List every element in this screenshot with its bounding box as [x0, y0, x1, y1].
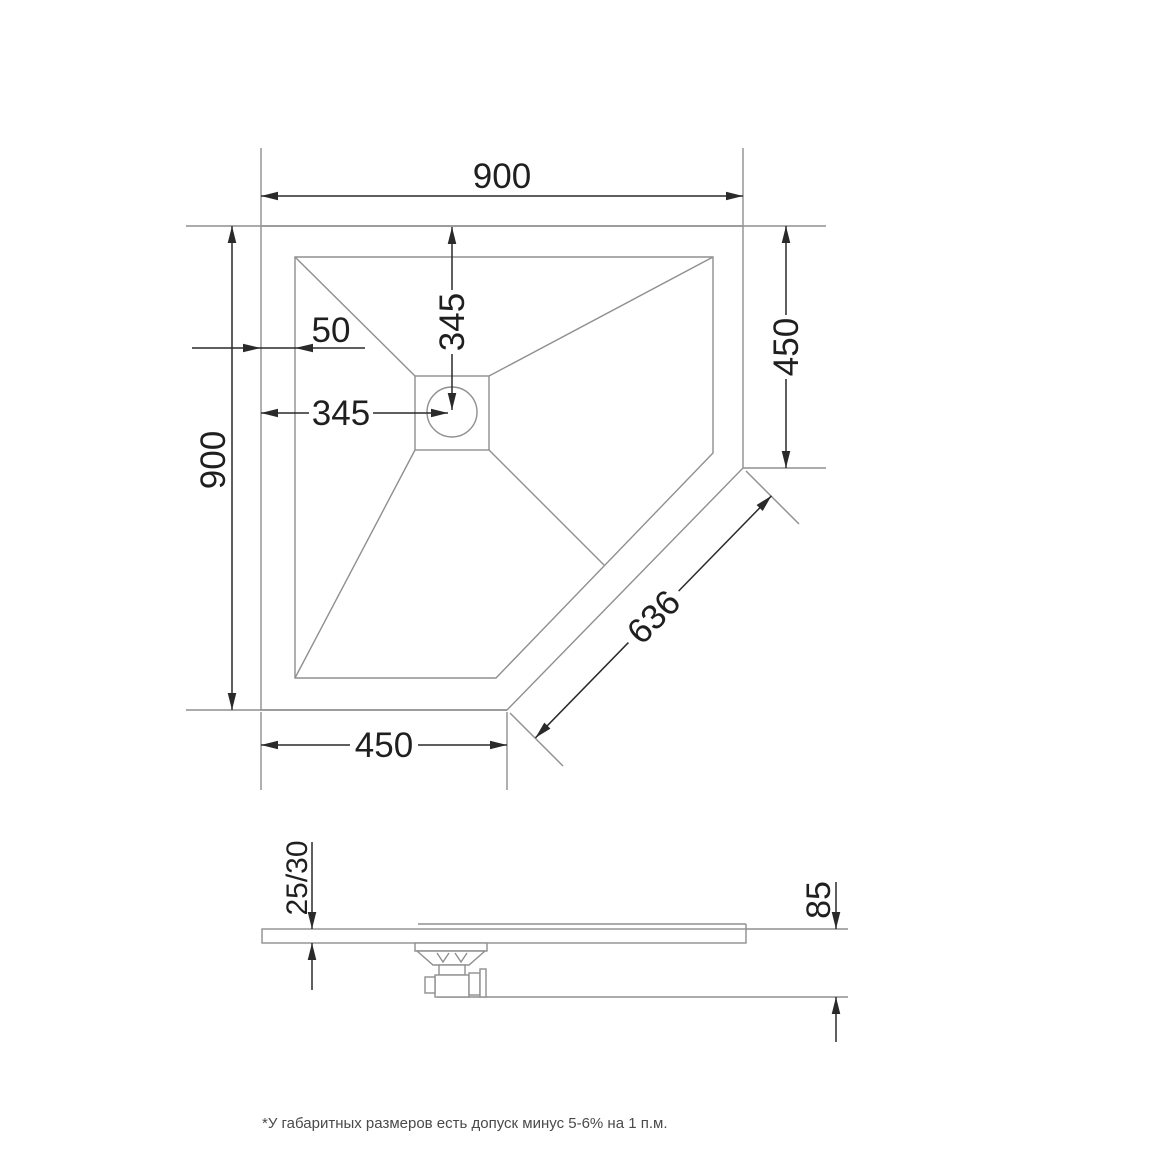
dim-label-drain-x: 345: [312, 394, 370, 433]
arrowhead-icon: [295, 344, 313, 352]
technical-drawing: 900 900 450 450 636 345 345 50 25/30: [0, 0, 1156, 1156]
slope-line-top-right: [489, 257, 713, 376]
outer-contour: [261, 226, 743, 710]
dim-label-overall-depth: 900: [194, 431, 233, 489]
dim-label-right-edge: 450: [767, 318, 806, 376]
tolerance-footnote: *У габаритных размеров есть допуск минус…: [262, 1115, 668, 1132]
drawing-canvas: 900 900 450 450 636 345 345 50 25/30: [0, 0, 1156, 1156]
drain-trap-outlet: [469, 973, 480, 995]
dim-label-wall-thickness: 50: [312, 311, 351, 350]
drain-trap-coupling: [480, 969, 486, 997]
top-view: 900 900 450 450 636 345 345 50: [186, 148, 826, 790]
dim-label-tray-thickness: 25/30: [281, 840, 314, 915]
extension-line-diagonal: [746, 471, 799, 524]
dim-label-total-height: 85: [800, 881, 838, 919]
drain-trap-flange: [415, 943, 487, 951]
drain-trap-neck: [439, 965, 465, 975]
dim-label-overall-width: 900: [473, 157, 531, 196]
dim-label-drain-y: 345: [433, 293, 472, 351]
drain-trap-body: [435, 975, 469, 997]
slope-line-bottom-right: [489, 450, 604, 565]
extension-line-diagonal: [510, 713, 563, 766]
side-view: 25/30 85: [262, 840, 848, 1042]
slope-line-bottom-left: [295, 450, 415, 678]
drain-trap-funnel: [417, 951, 485, 965]
arrowhead-icon: [243, 344, 261, 352]
tray-slab-profile: [262, 929, 746, 943]
drain-trap-tab: [425, 977, 435, 993]
dim-label-bottom-edge: 450: [355, 726, 413, 765]
